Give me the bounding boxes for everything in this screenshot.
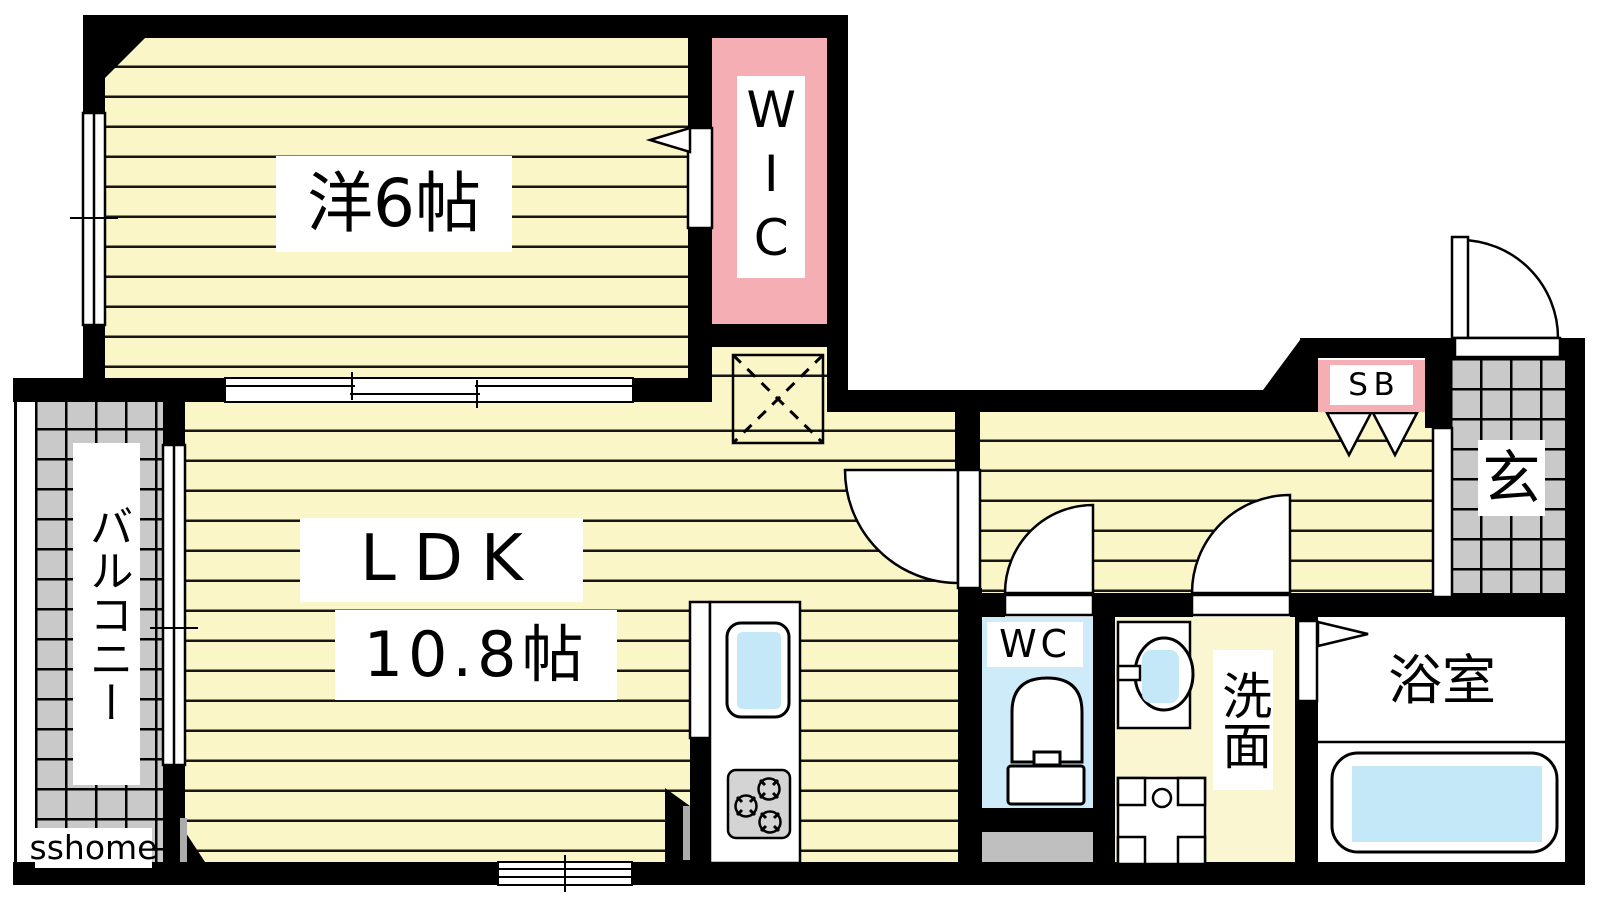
door-bathroom bbox=[1298, 621, 1368, 701]
window-balcony bbox=[150, 445, 198, 765]
room-label-wic: WIC bbox=[737, 76, 805, 278]
washbasin-icon bbox=[1118, 622, 1193, 728]
toilet-icon bbox=[1008, 678, 1084, 804]
door-direction-pennant bbox=[650, 128, 690, 152]
shutter-slit bbox=[683, 806, 690, 860]
entrance-door bbox=[1452, 237, 1560, 357]
room-label-ldk-size: 10.8帖 bbox=[335, 610, 617, 700]
door-wic bbox=[650, 128, 712, 228]
room-label-ldk: LDK bbox=[300, 518, 583, 602]
kitchen-sink bbox=[727, 623, 789, 717]
shutter-slit bbox=[180, 818, 187, 862]
room-label-western: 洋6帖 bbox=[276, 156, 512, 252]
room-label-wc: WC bbox=[987, 622, 1083, 667]
door-direction-pennant bbox=[1318, 622, 1368, 646]
room-label-washroom: 洗面 bbox=[1213, 650, 1273, 790]
floorplan: 洋6帖 LDK 10.8帖 WIC バルコニー SB 玄 WC 洗面 浴室 ss… bbox=[0, 0, 1600, 900]
gas-stove-icon bbox=[728, 770, 790, 838]
window-ldk-south bbox=[498, 855, 632, 892]
room-label-balcony: バルコニー bbox=[73, 443, 140, 785]
refrigerator-space bbox=[733, 355, 823, 443]
door-washroom bbox=[1192, 495, 1290, 615]
sliding-door-west-ldk bbox=[225, 372, 633, 408]
window-west-room bbox=[70, 113, 118, 325]
shoe-box-folding-doors bbox=[1327, 413, 1417, 455]
watermark: sshome bbox=[35, 828, 152, 868]
door-ldk-hallway bbox=[845, 470, 980, 588]
washing-machine-pan bbox=[1118, 778, 1205, 864]
entrance-step bbox=[1433, 428, 1452, 597]
room-label-entrance: 玄 bbox=[1478, 440, 1545, 516]
bathtub bbox=[1318, 742, 1565, 852]
room-label-bathroom: 浴室 bbox=[1372, 648, 1512, 714]
door-wc bbox=[1005, 505, 1093, 615]
shoe-box-label: SB bbox=[1330, 365, 1413, 405]
